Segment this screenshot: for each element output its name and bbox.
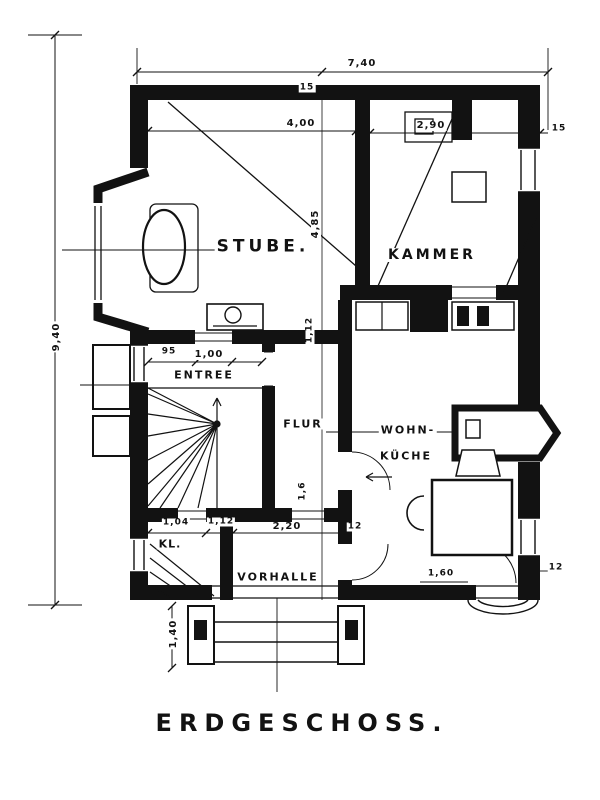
chair-round (407, 496, 424, 530)
room-label-stube: STUBE. (215, 239, 312, 256)
room-label-kl: KL. (157, 539, 184, 550)
dim-steps-height: 1,40 (169, 619, 179, 650)
dim-wall-12-right: 12 (548, 564, 565, 573)
floor-plan: STUBE. KAMMER ENTREE FLUR WOHN- KÜCHE KL… (0, 0, 600, 800)
dim-flur-vertical: 1,6 (299, 481, 308, 502)
chimney (452, 100, 472, 140)
entrance-steps (188, 606, 364, 664)
dim-kammer-width: 2,90 (416, 121, 447, 131)
stube-furniture (168, 102, 356, 330)
dim-door-160: 1,60 (427, 570, 455, 579)
tiled-stove (143, 210, 185, 284)
room-label-entree: ENTREE (172, 370, 236, 381)
dim-wall-12-bottom: 12 (347, 523, 364, 532)
room-label-wohn: WOHN- (379, 425, 437, 436)
kitchen-table (432, 480, 512, 555)
exterior-piers (93, 345, 130, 456)
left-bay (93, 168, 198, 337)
dim-vorhalle-width: 2,20 (272, 522, 303, 532)
dim-mid-vertical: 1,12 (306, 316, 315, 344)
dim-wall-15-top: 15 (299, 84, 316, 93)
room-label-kueche: KÜCHE (378, 451, 434, 462)
dim-total-width: 7,40 (347, 59, 378, 69)
kitchen-range-block (410, 288, 448, 332)
dim-door-112: 1,12 (207, 518, 235, 527)
room-label-vorhalle: VORHALLE (235, 572, 320, 583)
dim-wall-15-right: 15 (551, 125, 568, 134)
plan-title: ERDGESCHOSS. (154, 711, 451, 735)
dim-entree-width: 1,00 (194, 350, 225, 360)
dim-total-height: 9,40 (52, 322, 62, 353)
room-label-flur: FLUR (281, 419, 325, 430)
main-staircase (148, 388, 262, 508)
dim-stube-height: 4,85 (311, 209, 321, 240)
kitchen-exterior-steps (468, 600, 538, 614)
chair (456, 450, 500, 476)
room-label-kammer: KAMMER (386, 248, 478, 262)
dim-door-95: 95 (161, 348, 178, 357)
dim-kl-width: 1,04 (162, 519, 190, 528)
dim-stube-width: 4,00 (286, 119, 317, 129)
